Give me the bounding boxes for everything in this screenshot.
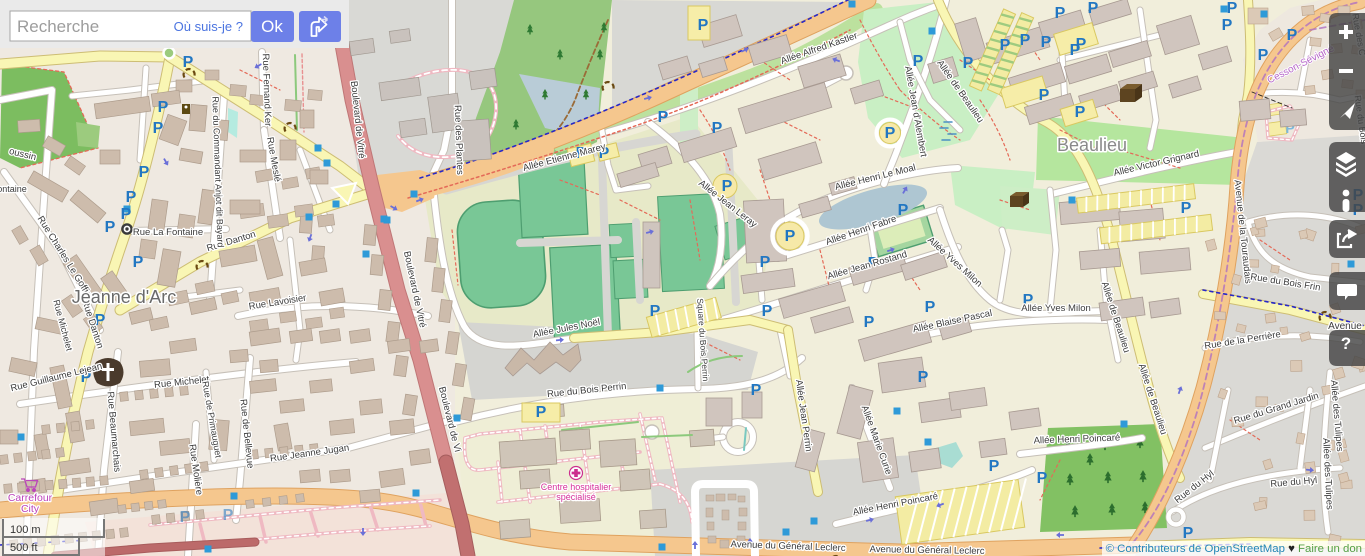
svg-text:ontaine: ontaine xyxy=(0,184,27,194)
svg-text:P: P xyxy=(1041,34,1052,51)
svg-text:P: P xyxy=(885,125,896,142)
svg-text:P: P xyxy=(898,202,909,219)
svg-text:P: P xyxy=(963,55,974,72)
svg-text:P: P xyxy=(760,254,771,271)
svg-text:P: P xyxy=(105,219,116,236)
svg-text:P: P xyxy=(698,17,709,34)
svg-text:P: P xyxy=(925,299,936,316)
svg-text:P: P xyxy=(1000,37,1011,54)
svg-text:P: P xyxy=(1287,27,1298,44)
svg-text:P: P xyxy=(918,369,929,386)
svg-text:P: P xyxy=(712,120,723,137)
svg-text:P: P xyxy=(989,458,1000,475)
svg-text:P: P xyxy=(1075,104,1086,121)
svg-text:Centre hospitalier: Centre hospitalier xyxy=(541,482,612,492)
svg-text:Beaulieu: Beaulieu xyxy=(1057,135,1127,155)
svg-text:P: P xyxy=(1088,0,1099,17)
svg-text:P: P xyxy=(1039,87,1050,104)
svg-text:P: P xyxy=(139,164,150,181)
svg-text:P: P xyxy=(183,54,194,71)
svg-text:P: P xyxy=(1183,525,1194,542)
svg-text:P: P xyxy=(722,178,733,195)
svg-text:P: P xyxy=(1181,200,1192,217)
svg-text:P: P xyxy=(126,189,137,206)
svg-text:P: P xyxy=(1258,47,1269,64)
svg-text:P: P xyxy=(1222,17,1233,34)
svg-text:City: City xyxy=(21,503,40,515)
svg-text:P: P xyxy=(658,109,669,126)
svg-text:spécialisé: spécialisé xyxy=(556,492,596,502)
svg-text:P: P xyxy=(1227,0,1238,17)
svg-text:P: P xyxy=(1055,5,1066,22)
svg-text:P: P xyxy=(1037,470,1048,487)
svg-text:?: ? xyxy=(1341,334,1351,353)
svg-text:P: P xyxy=(785,228,796,245)
svg-text:500 ft: 500 ft xyxy=(10,542,38,554)
svg-text:P: P xyxy=(153,120,164,137)
svg-text:P: P xyxy=(864,314,875,331)
svg-text:© Contributeurs de OpenStreetM: © Contributeurs de OpenStreetMap ♥ Faire… xyxy=(1106,543,1362,555)
svg-text:Ok: Ok xyxy=(261,17,283,36)
svg-text:Jeanne d'Arc: Jeanne d'Arc xyxy=(72,287,177,307)
svg-text:P: P xyxy=(1020,32,1031,49)
svg-text:P: P xyxy=(1070,42,1081,59)
svg-text:P: P xyxy=(913,53,924,70)
svg-text:Recherche: Recherche xyxy=(17,17,99,36)
svg-text:Où suis-je ?: Où suis-je ? xyxy=(174,19,243,34)
svg-text:P: P xyxy=(762,303,773,320)
svg-text:Rue La Fontaine: Rue La Fontaine xyxy=(133,227,203,238)
svg-text:P: P xyxy=(158,99,169,116)
svg-text:Allée Yves Milon: Allée Yves Milon xyxy=(1021,303,1091,314)
svg-text:P: P xyxy=(133,254,144,271)
svg-text:100 m: 100 m xyxy=(10,524,41,536)
svg-text:Avenue du Général Leclerc: Avenue du Général Leclerc xyxy=(869,544,984,556)
svg-text:P: P xyxy=(751,382,762,399)
svg-text:P: P xyxy=(121,206,132,223)
svg-text:P: P xyxy=(650,303,661,320)
svg-text:P: P xyxy=(180,509,191,526)
svg-text:P: P xyxy=(536,404,547,421)
svg-text:P: P xyxy=(223,507,234,524)
